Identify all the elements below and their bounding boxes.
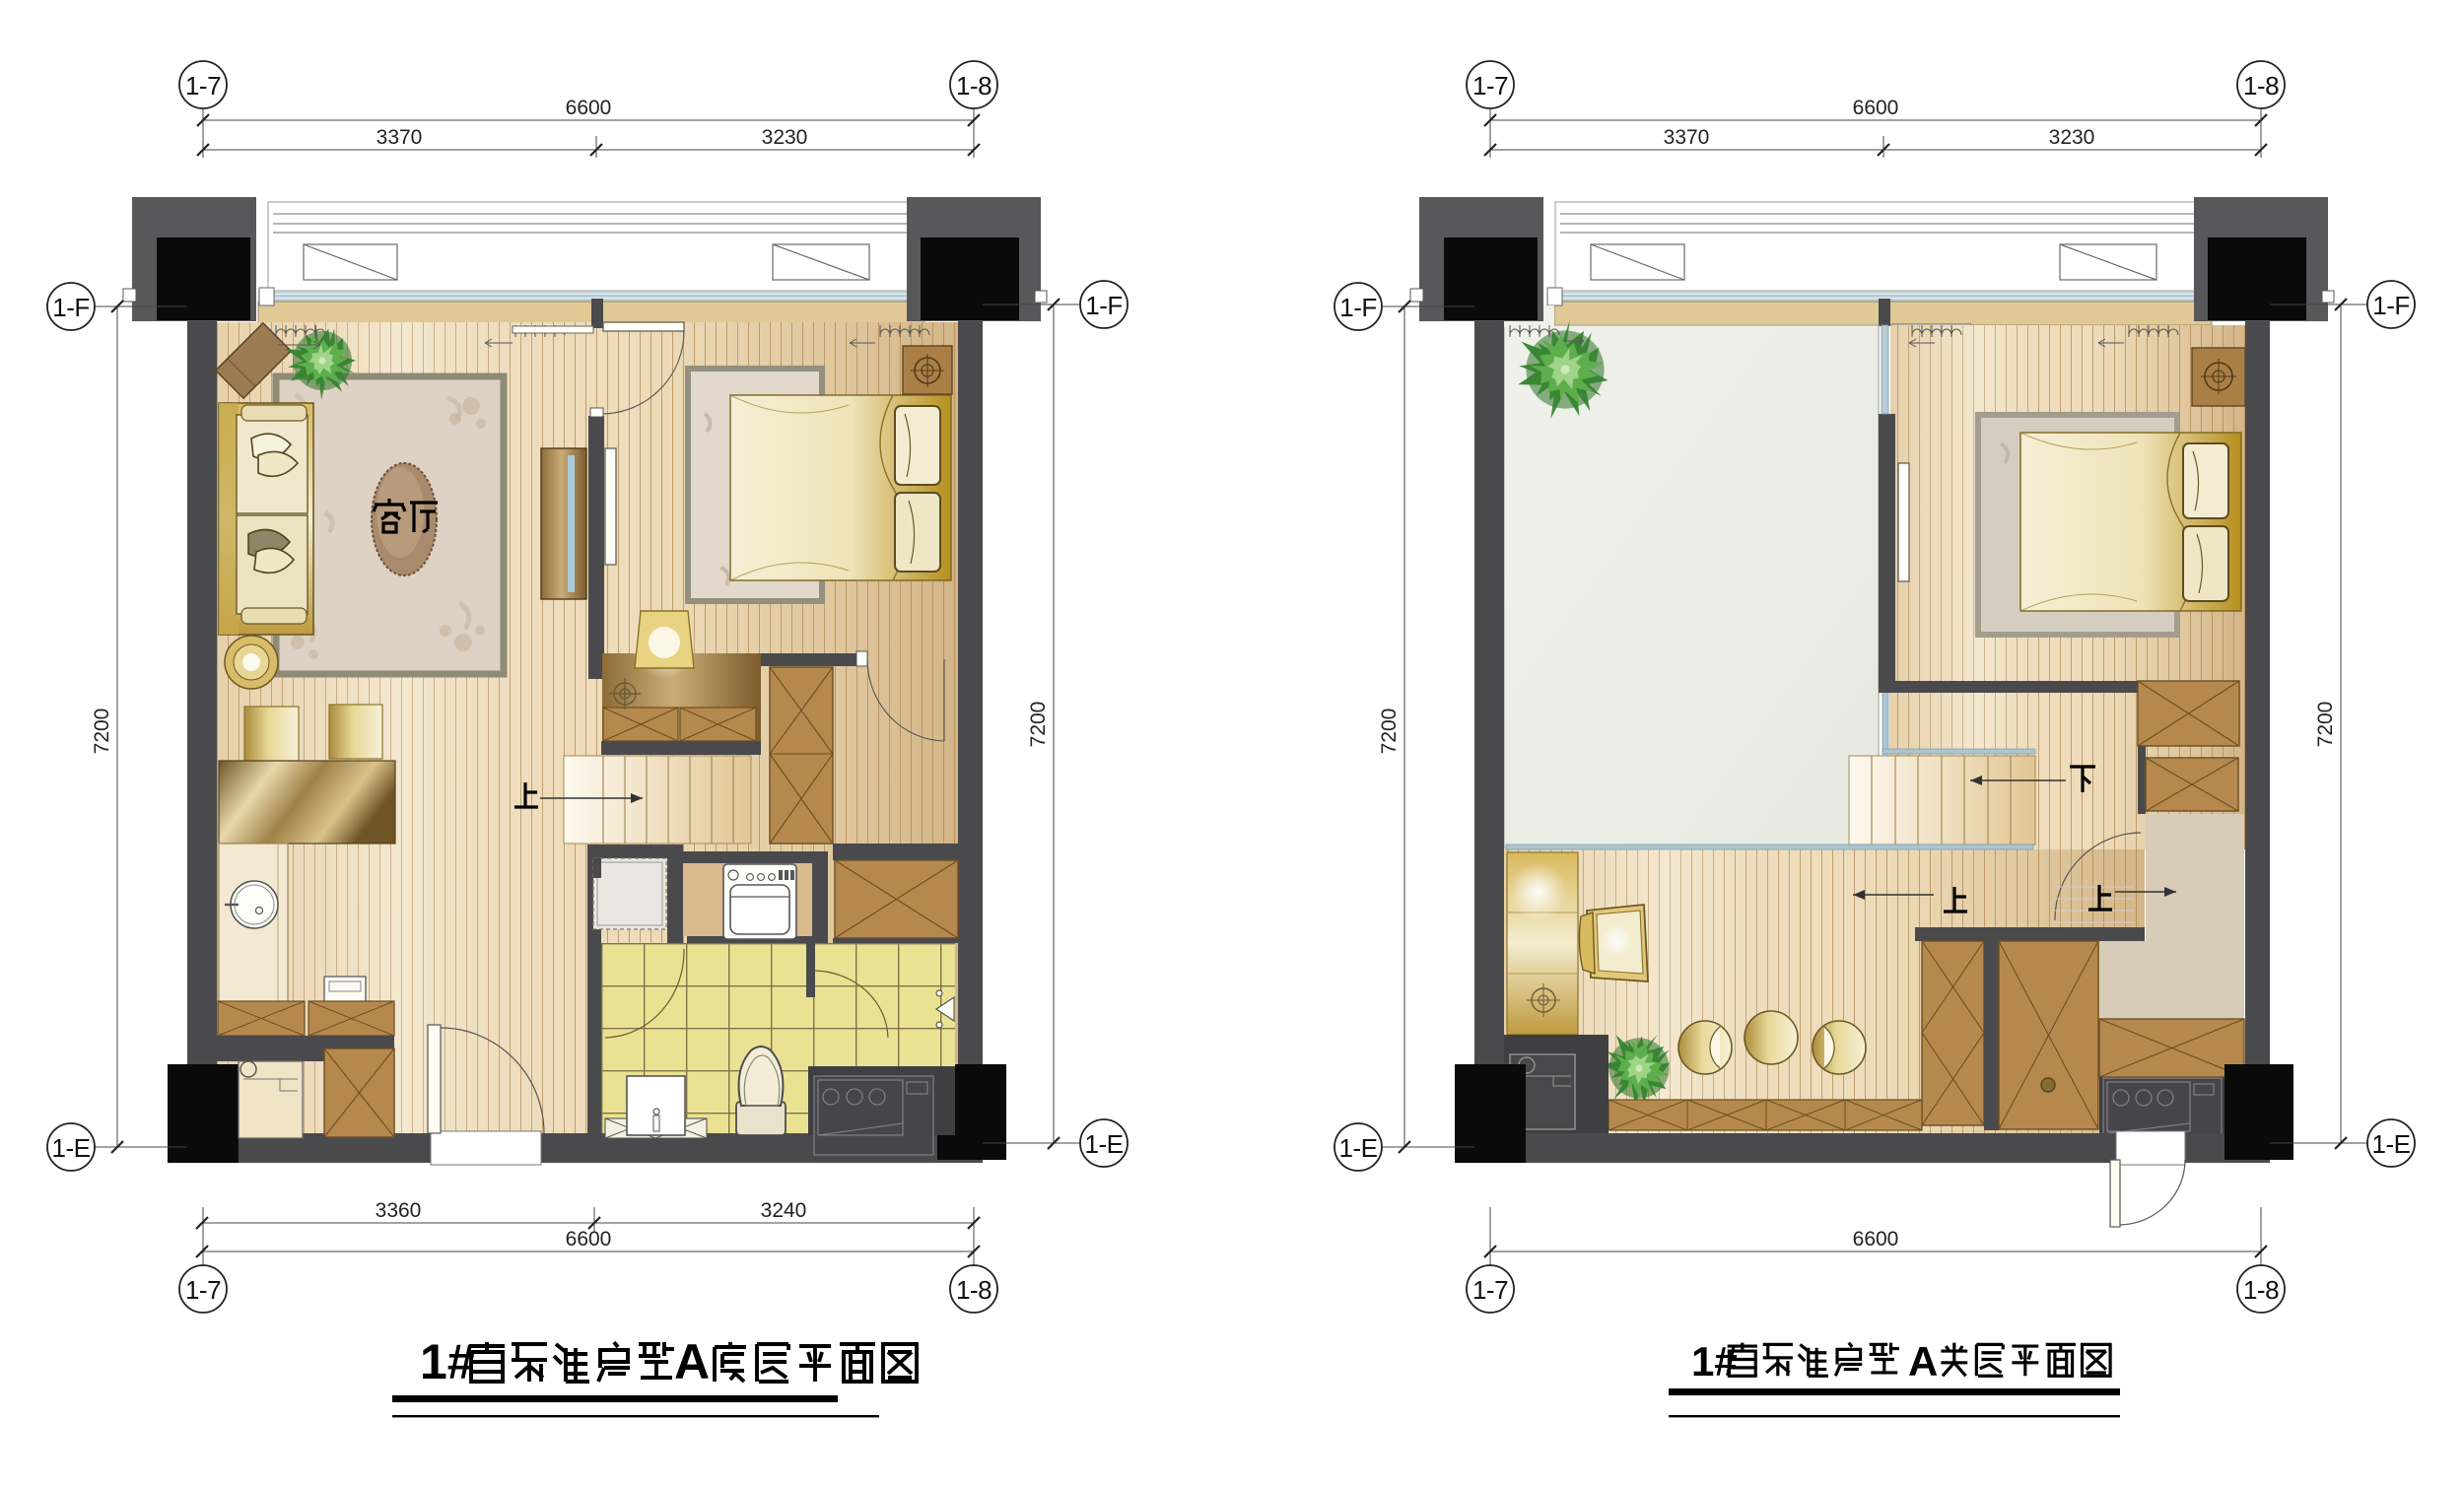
svg-text:7200: 7200 <box>91 709 113 755</box>
svg-text:1-E: 1-E <box>2372 1129 2411 1159</box>
svg-text:1-7: 1-7 <box>1472 71 1508 101</box>
svg-text:3230: 3230 <box>762 126 808 149</box>
svg-text:7200: 7200 <box>2314 702 2337 748</box>
svg-text:7200: 7200 <box>1027 702 1050 748</box>
svg-text:1-F: 1-F <box>1085 291 1123 320</box>
svg-text:1-E: 1-E <box>52 1133 91 1163</box>
svg-text:3230: 3230 <box>2049 126 2095 149</box>
svg-text:3370: 3370 <box>376 126 423 149</box>
svg-text:1-8: 1-8 <box>2243 71 2279 101</box>
svg-text:6600: 6600 <box>1853 97 1899 119</box>
svg-text:3360: 3360 <box>376 1199 422 1222</box>
svg-text:1-E: 1-E <box>1085 1129 1124 1159</box>
svg-text:6600: 6600 <box>566 97 612 119</box>
svg-text:1-F: 1-F <box>1339 293 1377 322</box>
svg-text:1-7: 1-7 <box>185 71 221 101</box>
svg-text:3370: 3370 <box>1664 126 1710 149</box>
svg-text:1-F: 1-F <box>52 293 90 322</box>
svg-text:A: A <box>1908 1338 1938 1385</box>
svg-text:1-8: 1-8 <box>956 71 992 101</box>
svg-text:3240: 3240 <box>761 1199 807 1222</box>
svg-text:1-7: 1-7 <box>1472 1275 1508 1305</box>
svg-text:1#: 1# <box>420 1334 475 1389</box>
svg-text:7200: 7200 <box>1378 709 1401 755</box>
svg-text:1-7: 1-7 <box>185 1275 221 1305</box>
svg-text:1-F: 1-F <box>2372 291 2410 320</box>
svg-text:A: A <box>674 1334 710 1389</box>
svg-text:1-E: 1-E <box>1339 1133 1378 1163</box>
svg-text:6600: 6600 <box>566 1228 612 1250</box>
svg-text:1-8: 1-8 <box>2243 1275 2279 1305</box>
svg-text:1-8: 1-8 <box>956 1275 992 1305</box>
svg-text:6600: 6600 <box>1853 1228 1899 1250</box>
